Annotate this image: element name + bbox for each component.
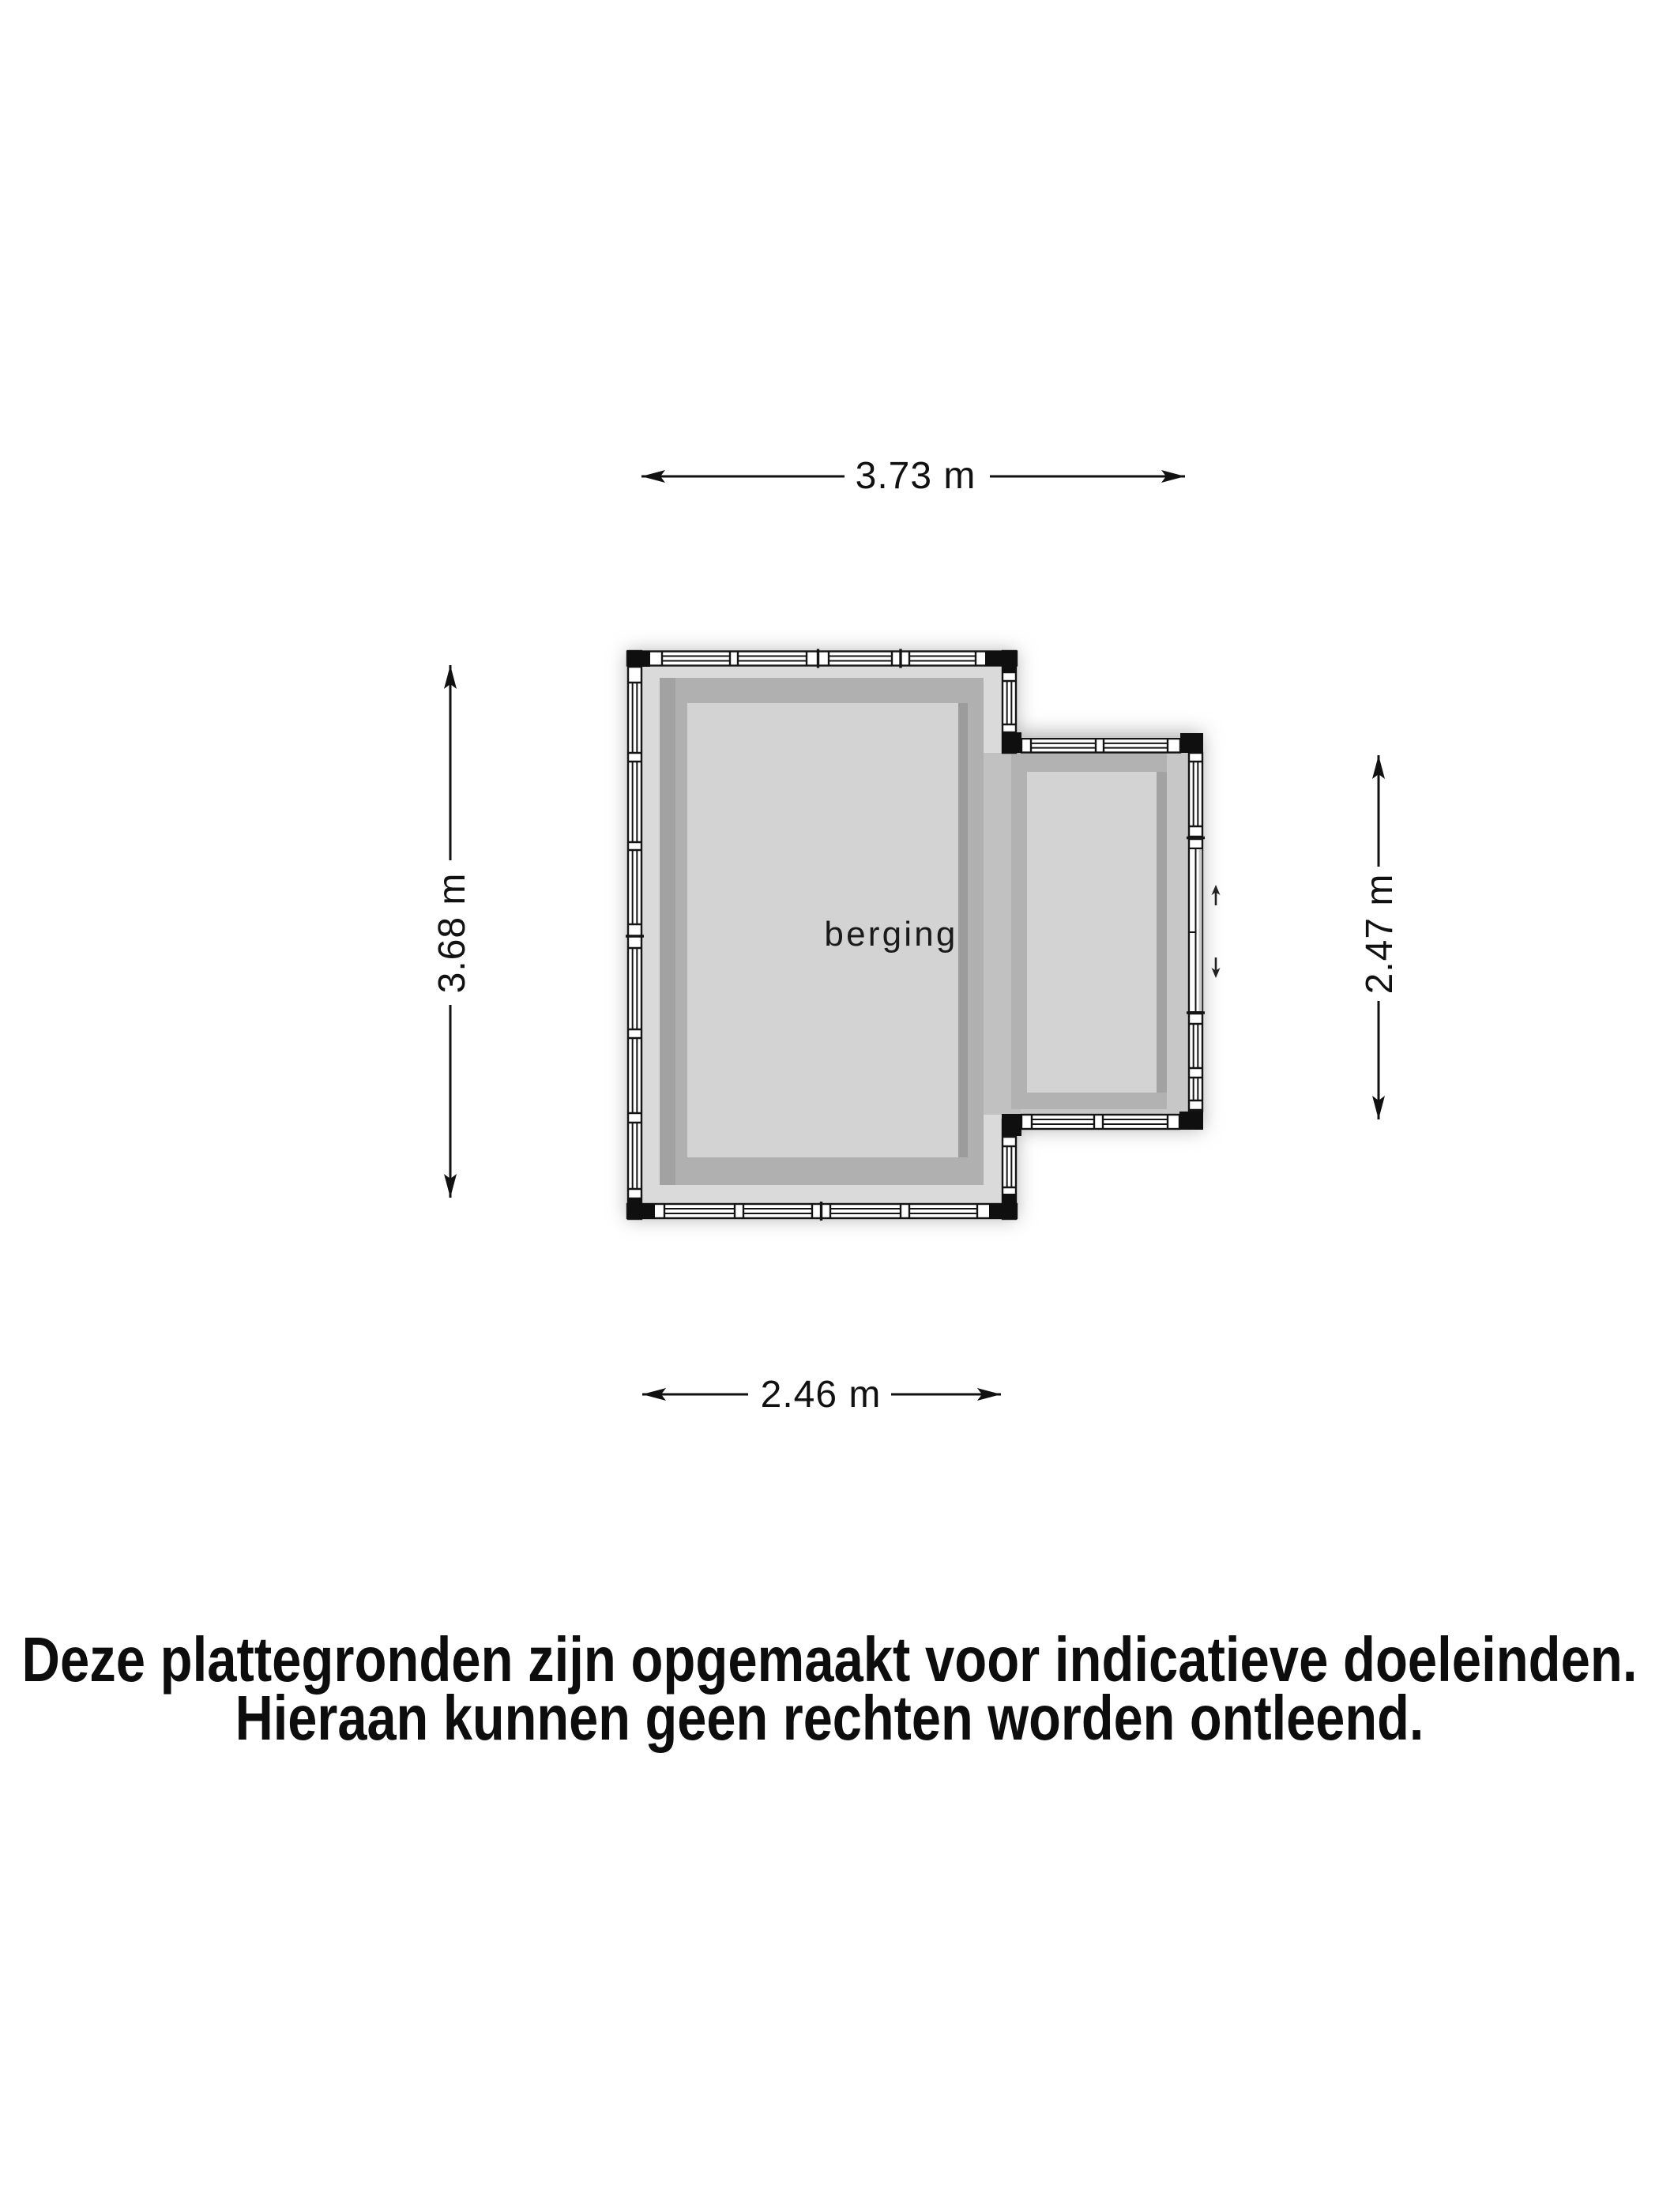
svg-text:3.68 m: 3.68 m [431,873,473,994]
svg-text:Hieraan kunnen geen rechten wo: Hieraan kunnen geen rechten worden ontle… [235,1682,1424,1753]
svg-text:2.47 m: 2.47 m [1359,874,1401,995]
svg-text:3.73 m: 3.73 m [856,455,976,497]
svg-text:2.46 m: 2.46 m [761,1374,882,1416]
svg-text:berging: berging [824,915,957,954]
